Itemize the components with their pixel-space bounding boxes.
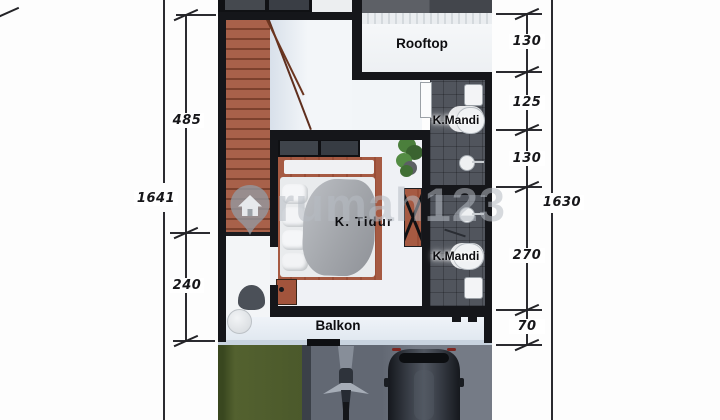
dim-label-270: 270 — [509, 248, 545, 263]
grass — [218, 344, 302, 420]
dim-label-right-total: 1630 — [540, 195, 584, 210]
wall-rooftop-bottom — [358, 72, 492, 80]
dim-extension — [173, 340, 215, 342]
door-handle — [279, 287, 284, 292]
rooftop-upper-band — [362, 0, 492, 13]
sink-counter — [472, 161, 484, 163]
wall-front — [270, 306, 492, 317]
wall-vent — [468, 317, 477, 322]
dim-extension — [496, 13, 542, 15]
dim-label-70: 70 — [509, 319, 545, 334]
room-label-rooftop: Rooftop — [386, 36, 458, 51]
room-label-bathroom-upper: K.Mandi — [426, 113, 486, 127]
bedroom-wardrobe-door — [321, 141, 358, 155]
balcony-gate — [307, 339, 340, 346]
watermark-pin-icon — [227, 184, 273, 236]
dim-line-left-outer — [163, 0, 165, 183]
dim-label-125: 125 — [509, 95, 545, 110]
dim-line-right-outer — [551, 0, 553, 193]
rooftop-ledge — [362, 13, 492, 24]
wall-rooftop-left — [352, 0, 362, 80]
chair — [238, 285, 265, 310]
dim-extension — [496, 309, 542, 311]
dim-tick — [0, 7, 19, 20]
wardrobe-top-door — [269, 0, 309, 10]
room-label-balcony: Balkon — [306, 318, 370, 333]
dim-label-240: 240 — [170, 278, 204, 293]
floor-plan-render: Rooftop K.Mandi K. Tidur K.Mandi Balkon … — [0, 0, 720, 420]
upper-landing-floor — [270, 20, 354, 133]
bedroom-wardrobe-door — [280, 141, 318, 155]
wall-top — [218, 12, 362, 20]
car — [384, 344, 464, 420]
bedroom-door-leaf-open — [276, 279, 297, 305]
dim-extension — [496, 71, 542, 73]
motorcycle — [322, 346, 370, 420]
hall-to-bathroom-floor — [352, 80, 422, 133]
dim-extension — [496, 129, 542, 131]
wall-balcony-right — [484, 317, 492, 343]
plant — [396, 137, 424, 177]
side-table — [227, 309, 252, 334]
wall-bedroom-top — [270, 130, 430, 140]
dim-label-left-total: 1641 — [134, 191, 178, 206]
wall-bedroom-left-lower — [270, 285, 278, 306]
wardrobe-top-door — [225, 0, 265, 10]
dim-line-right-inner — [526, 13, 528, 346]
watermark-text: rumah123 — [276, 181, 506, 228]
plant-leaves — [400, 165, 413, 177]
room-label-bathroom-lower: K.Mandi — [426, 249, 486, 263]
water-heater — [464, 277, 483, 299]
water-heater — [464, 84, 483, 106]
wall-vent — [452, 317, 461, 322]
dim-label-130a: 130 — [509, 34, 545, 49]
bed-headboard — [284, 160, 374, 174]
dim-label-485: 485 — [170, 113, 204, 128]
sink — [459, 155, 475, 171]
dim-extension — [496, 344, 542, 346]
dim-label-130b: 130 — [509, 151, 545, 166]
wall-outer-left — [218, 12, 226, 342]
dim-line-right-outer — [551, 213, 553, 420]
dim-line-left-outer — [163, 212, 165, 420]
